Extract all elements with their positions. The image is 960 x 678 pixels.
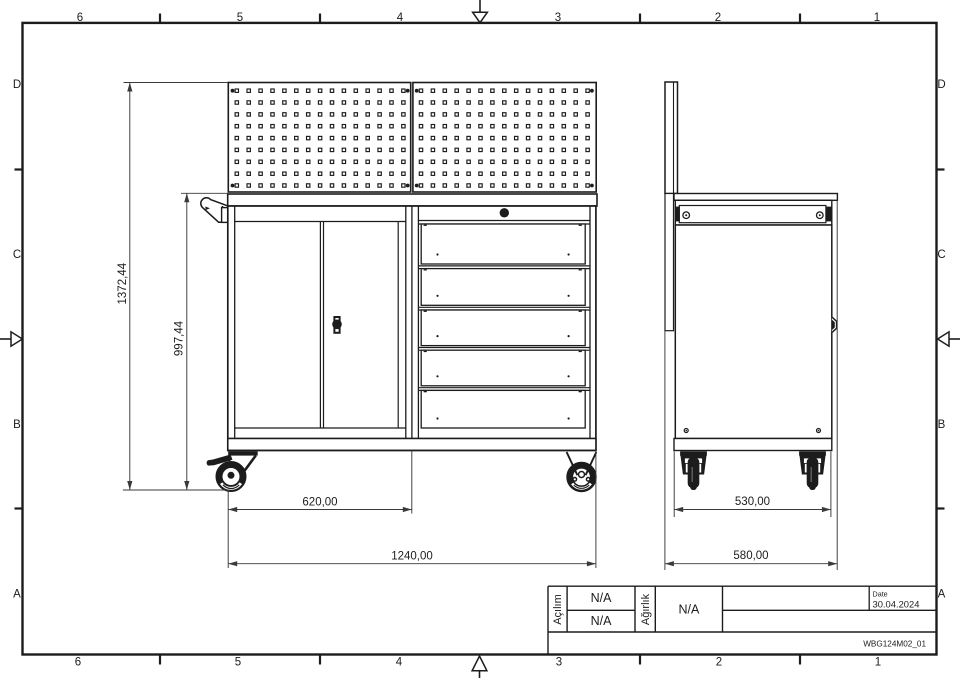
svg-text:620,00: 620,00 (302, 497, 337, 509)
svg-text:1: 1 (875, 657, 881, 669)
svg-text:580,00: 580,00 (733, 550, 768, 562)
svg-text:1240,00: 1240,00 (391, 551, 433, 563)
svg-text:30.04.2024: 30.04.2024 (873, 599, 920, 610)
svg-text:A: A (938, 589, 946, 601)
svg-text:6: 6 (77, 12, 83, 24)
svg-text:D: D (937, 79, 945, 91)
svg-text:A: A (13, 589, 21, 601)
svg-text:997,44: 997,44 (174, 320, 186, 356)
svg-text:B: B (938, 419, 946, 431)
svg-text:B: B (13, 419, 21, 431)
svg-text:WBG124M02_01: WBG124M02_01 (863, 640, 926, 649)
svg-text:4: 4 (397, 12, 404, 24)
svg-text:C: C (13, 249, 21, 261)
svg-text:N/A: N/A (678, 603, 700, 617)
svg-text:C: C (937, 249, 945, 261)
svg-text:3: 3 (556, 657, 562, 669)
svg-text:5: 5 (235, 657, 241, 669)
svg-text:2: 2 (716, 657, 722, 669)
svg-text:5: 5 (237, 12, 243, 24)
svg-text:N/A: N/A (591, 614, 613, 628)
svg-text:D: D (13, 79, 21, 91)
svg-text:Date: Date (873, 590, 888, 599)
svg-text:3: 3 (555, 12, 561, 24)
svg-text:4: 4 (396, 657, 403, 669)
svg-text:Açılım: Açılım (552, 594, 564, 625)
svg-text:6: 6 (75, 657, 81, 669)
svg-text:1372,44: 1372,44 (117, 262, 129, 304)
svg-text:2: 2 (715, 12, 721, 24)
svg-text:1: 1 (874, 12, 880, 24)
svg-text:N/A: N/A (591, 591, 613, 605)
svg-text:Ağırlık: Ağırlık (640, 593, 652, 625)
svg-text:530,00: 530,00 (735, 496, 770, 508)
